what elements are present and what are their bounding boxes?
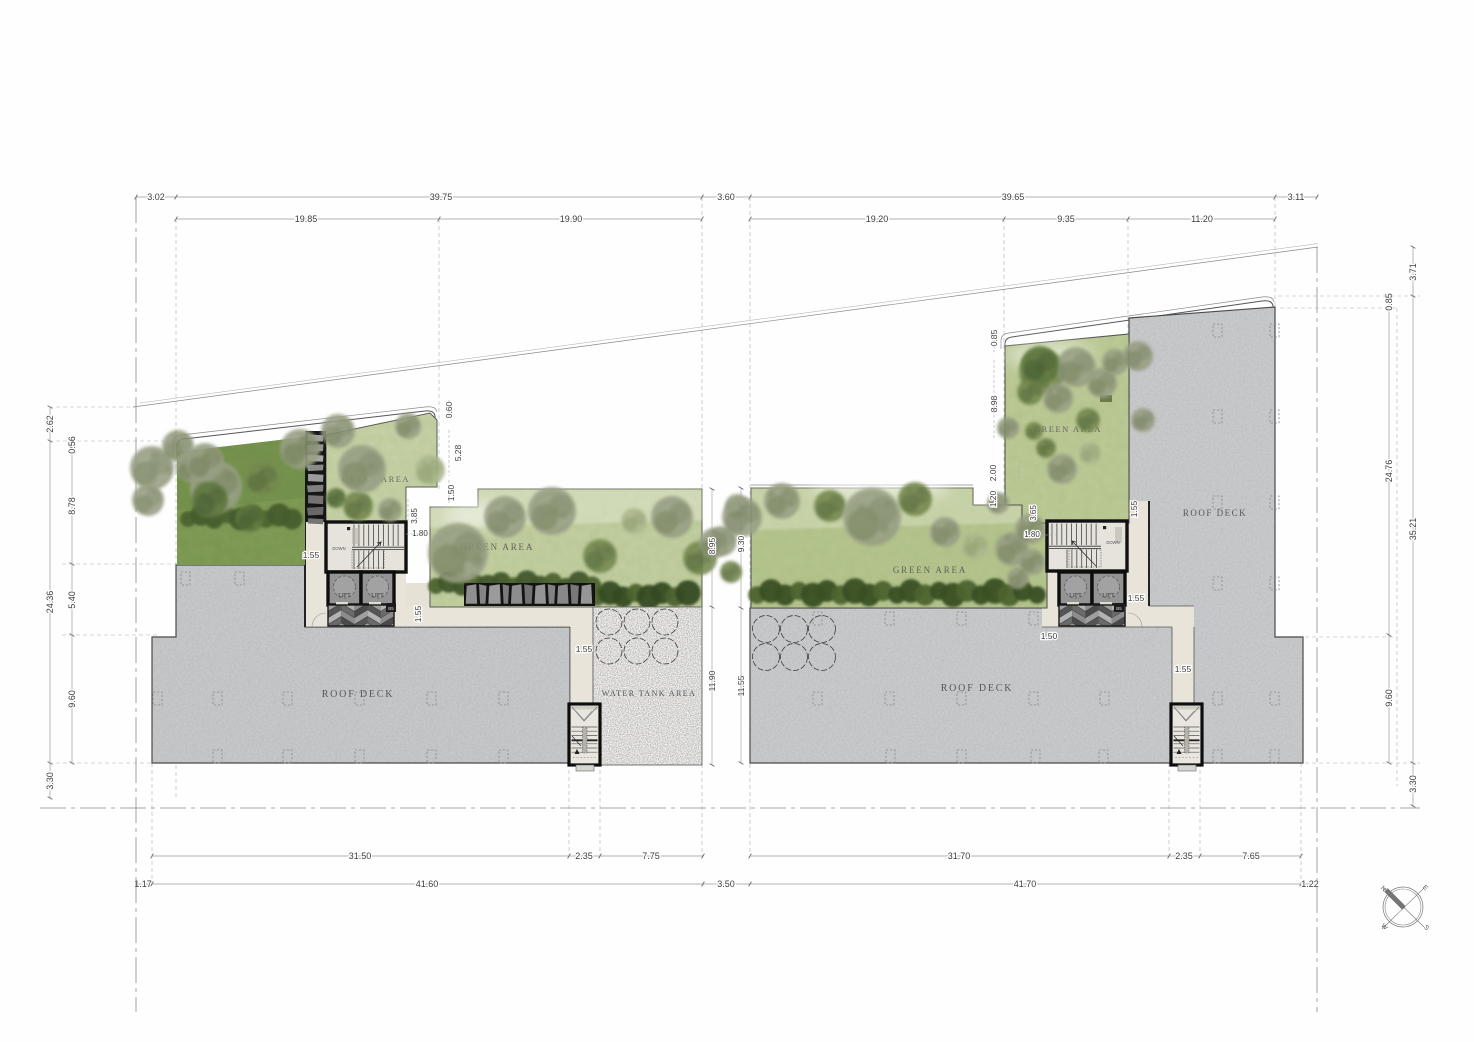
svg-text:GREEN AREA: GREEN AREA (893, 565, 967, 575)
svg-text:7.75: 7.75 (642, 851, 660, 861)
svg-text:3.11: 3.11 (1288, 192, 1305, 202)
svg-text:19.85: 19.85 (295, 214, 318, 224)
svg-text:8.95: 8.95 (707, 537, 717, 554)
svg-text:1.50: 1.50 (1041, 631, 1058, 641)
svg-text:9.60: 9.60 (67, 690, 77, 708)
svg-text:B5: B5 (388, 606, 394, 611)
svg-text:LIFT: LIFT (1069, 593, 1082, 599)
svg-text:1.55: 1.55 (1129, 500, 1139, 517)
svg-text:5.40: 5.40 (67, 591, 77, 609)
svg-text:3.30: 3.30 (45, 772, 55, 790)
svg-text:39.75: 39.75 (430, 192, 453, 202)
svg-text:3.30: 3.30 (1408, 775, 1418, 793)
svg-text:39.65: 39.65 (1002, 192, 1025, 202)
svg-text:B5: B5 (1116, 606, 1122, 611)
svg-text:1.20: 1.20 (988, 490, 998, 507)
svg-text:DOWN: DOWN (1106, 540, 1119, 545)
svg-text:3.85: 3.85 (410, 508, 419, 524)
svg-text:3.02: 3.02 (147, 192, 165, 202)
svg-text:31.50: 31.50 (349, 851, 372, 861)
svg-text:1.50: 1.50 (446, 484, 456, 501)
svg-text:2.35: 2.35 (575, 851, 593, 861)
svg-text:LIFT: LIFT (338, 593, 351, 599)
svg-text:1.80: 1.80 (1024, 530, 1040, 539)
svg-text:LIFT: LIFT (1102, 593, 1115, 599)
svg-text:2.62: 2.62 (45, 415, 55, 433)
svg-text:31.70: 31.70 (948, 851, 971, 861)
svg-text:35.21: 35.21 (1408, 518, 1418, 541)
svg-text:7.65: 7.65 (1242, 851, 1260, 861)
svg-text:1.17: 1.17 (134, 879, 152, 889)
svg-text:WATER TANK AREA: WATER TANK AREA (602, 689, 696, 698)
svg-text:1.55: 1.55 (1175, 664, 1192, 674)
svg-text:ROOF DECK: ROOF DECK (941, 683, 1014, 694)
svg-text:DOWN: DOWN (332, 546, 345, 551)
svg-text:11.20: 11.20 (1191, 214, 1213, 224)
svg-text:9.60: 9.60 (1384, 689, 1394, 707)
svg-text:3.60: 3.60 (717, 192, 735, 202)
svg-text:1.55: 1.55 (1128, 593, 1145, 603)
svg-text:5.28: 5.28 (453, 444, 463, 461)
svg-text:ROOF DECK: ROOF DECK (1183, 508, 1247, 518)
svg-text:19.90: 19.90 (560, 214, 583, 224)
svg-text:3.65: 3.65 (1029, 505, 1038, 521)
svg-text:3.50: 3.50 (717, 879, 735, 889)
svg-text:24.36: 24.36 (45, 591, 55, 614)
svg-text:1.55: 1.55 (303, 550, 320, 560)
svg-text:2.35: 2.35 (1175, 851, 1193, 861)
svg-text:1.80: 1.80 (412, 529, 428, 538)
svg-text:19.20: 19.20 (866, 214, 889, 224)
svg-text:LIFT: LIFT (371, 593, 384, 599)
svg-text:41.70: 41.70 (1014, 879, 1037, 889)
svg-text:9.35: 9.35 (1057, 214, 1075, 224)
svg-text:3.71: 3.71 (1408, 263, 1418, 281)
svg-text:2.00: 2.00 (988, 464, 998, 481)
svg-text:8.78: 8.78 (67, 497, 77, 515)
svg-text:0.56: 0.56 (67, 436, 77, 454)
svg-text:9.30: 9.30 (736, 535, 746, 552)
svg-text:1.22: 1.22 (1301, 879, 1319, 889)
svg-text:1.55: 1.55 (413, 605, 423, 622)
svg-text:1.55: 1.55 (576, 644, 593, 654)
svg-text:ROOF DECK: ROOF DECK (322, 689, 395, 700)
svg-text:24.76: 24.76 (1384, 460, 1394, 483)
svg-text:41.60: 41.60 (416, 879, 439, 889)
